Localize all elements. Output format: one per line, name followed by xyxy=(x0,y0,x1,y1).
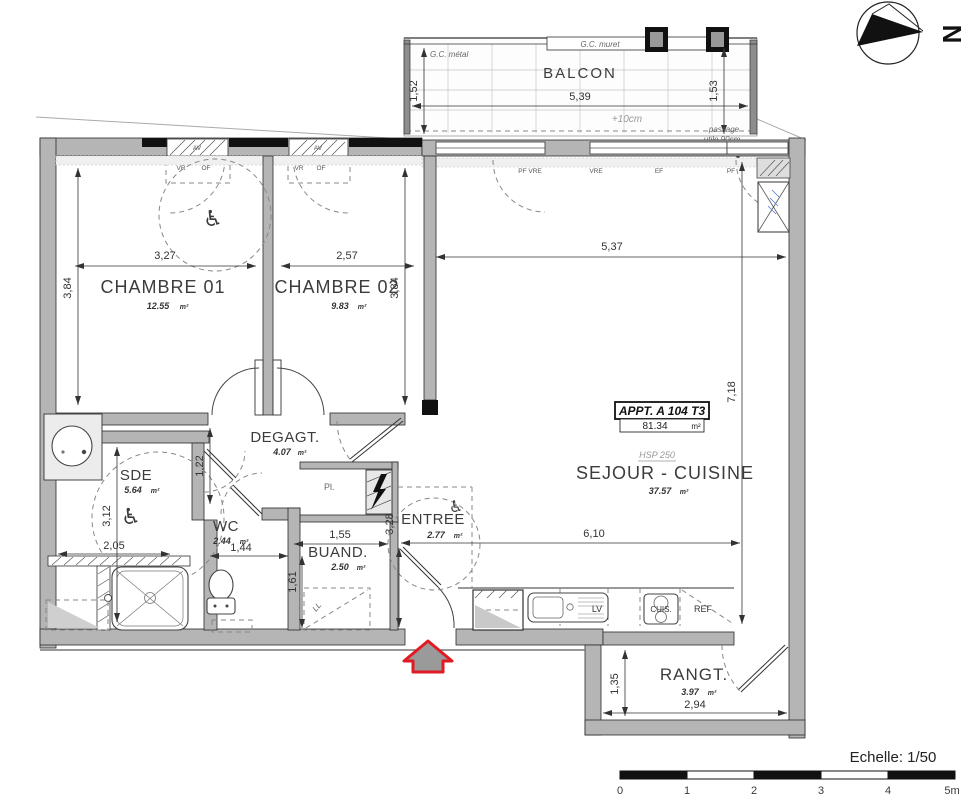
property-line-left xyxy=(36,117,422,140)
wc-area: 2.44 xyxy=(212,536,231,546)
dim-ch1-height: 3,84 xyxy=(62,277,74,298)
lintel xyxy=(349,138,422,147)
dim-sejour-height: 7,18 xyxy=(726,381,738,402)
dim-degagt-height: 1,22 xyxy=(194,455,206,476)
toilet-bowl xyxy=(209,570,233,600)
door-arc-entree xyxy=(438,587,454,628)
scale-tick-5: 5m xyxy=(944,785,959,797)
muret-label-box xyxy=(547,37,709,50)
sill-band-chambres xyxy=(56,156,422,165)
window-av2-label: AV xyxy=(314,145,323,152)
sejour-area: 37.57 xyxy=(649,486,673,496)
scale-label: Echelle: 1/50 xyxy=(850,749,937,766)
pf-vre-label: PF VRE xyxy=(518,168,542,175)
balcony-name: BALCON xyxy=(543,65,617,82)
placard: Pl. xyxy=(324,470,392,514)
lv-label: LV xyxy=(592,604,602,614)
lintel xyxy=(229,138,288,147)
scale-tick-2: 2 xyxy=(751,785,757,797)
scale-tick-4: 4 xyxy=(885,785,891,797)
dim-rangt-width: 2,94 xyxy=(684,699,705,711)
buand-name: BUAND. xyxy=(308,544,368,561)
apartment-area: 81.34 xyxy=(642,421,667,432)
wall-wc-buand xyxy=(288,508,300,630)
door-arc-chambre1 xyxy=(212,368,259,415)
scale-bar: Echelle: 1/50 0 1 2 3 4 5m xyxy=(617,749,960,797)
sde-name: SDE xyxy=(120,467,152,484)
technical-duct xyxy=(757,158,790,232)
dim-ch2-width: 2,57 xyxy=(336,250,357,262)
gc-metal-label: G.C. métal xyxy=(430,50,468,59)
sde-area: 5.64 xyxy=(124,485,142,495)
wall-left xyxy=(40,138,56,648)
dim-sejour-width: 5,37 xyxy=(601,241,622,253)
dim-sejour-mid: 6,10 xyxy=(583,528,604,540)
scale-tick-3: 3 xyxy=(818,785,824,797)
gc-muret-label: G.C. muret xyxy=(580,40,620,49)
dim-sde-width: 2,05 xyxy=(103,540,124,552)
ref-label: REF xyxy=(694,604,713,614)
shower-tap xyxy=(105,595,112,602)
wall-rangt-top xyxy=(603,632,734,645)
wall-endcap xyxy=(422,400,438,415)
hsp-label: HSP 250 xyxy=(639,450,675,460)
north-needle xyxy=(857,14,923,46)
degagt-name: DEGAGT. xyxy=(250,429,319,446)
washbasin-icon xyxy=(52,426,92,466)
degagt-unit: m² xyxy=(298,450,307,457)
north-label: N xyxy=(937,25,967,44)
door-leaf-entree xyxy=(403,547,441,585)
wall-sde-top xyxy=(100,431,209,443)
wall-ch1-ch2 xyxy=(263,156,273,415)
dim-buand-width: 1,55 xyxy=(329,529,350,541)
dim-ch1-width: 3,27 xyxy=(154,250,175,262)
chambre2-name: CHAMBRE 02 xyxy=(274,277,399,297)
entrance-arrow xyxy=(404,641,452,672)
apartment-area-unit: m² xyxy=(691,422,701,431)
door-leaf-rangt xyxy=(738,645,785,690)
property-line-right xyxy=(757,119,806,140)
of2-label: OF xyxy=(316,165,325,172)
wall-right xyxy=(789,138,805,738)
chambre2-area: 9.83 xyxy=(331,301,349,311)
chambre2-unit: m² xyxy=(358,304,367,311)
wc-name: WC xyxy=(213,518,239,535)
entree-unit: m² xyxy=(454,533,463,540)
pf-label: PF xyxy=(727,168,735,175)
dim-buand-height: 1,61 xyxy=(287,571,299,592)
scale-tick-1: 1 xyxy=(684,785,690,797)
placard-label: Pl. xyxy=(324,482,335,492)
sde-furniture-triangle xyxy=(48,602,100,628)
ll-label: LL xyxy=(311,601,324,614)
sejour-name: SEJOUR - CUISINE xyxy=(576,463,754,483)
wall-sde-right xyxy=(192,443,204,520)
dim-balcony-width: 5,39 xyxy=(569,91,590,103)
wall-placard-top xyxy=(300,462,398,469)
scale-tick-0: 0 xyxy=(617,785,623,797)
entree-area: 2.77 xyxy=(426,530,446,540)
buand-area: 2.50 xyxy=(330,562,349,572)
wall-bottom-left xyxy=(40,629,405,645)
floor-plan-drawing: G.C. muret G.C. métal BALCON 5,39 1,52 1… xyxy=(0,0,972,800)
apartment-id: APPT. A 104 T3 xyxy=(618,404,706,418)
wall-ch2-sejour xyxy=(424,156,436,400)
chambre1-unit: m² xyxy=(180,304,189,311)
rangt-unit: m² xyxy=(708,690,717,697)
toilet-tank xyxy=(207,598,235,614)
sde-unit: m² xyxy=(151,488,160,495)
wheelchair-icon: ♿ xyxy=(121,504,141,529)
floor-plan-page: G.C. muret G.C. métal BALCON 5,39 1,52 1… xyxy=(0,0,972,800)
balcony-rail-right xyxy=(750,40,757,134)
wall-rangt-bottom xyxy=(585,720,805,735)
balcony-post-core xyxy=(650,32,663,47)
door-arc-sejour xyxy=(337,421,352,462)
vre-label: VRE xyxy=(589,168,603,175)
passage-note-1: passage xyxy=(708,125,740,134)
ef-label: EF xyxy=(655,168,663,175)
chambre1-name: CHAMBRE 01 xyxy=(100,277,225,297)
sejour-unit: m² xyxy=(680,489,689,496)
rangt-name: RANGT. xyxy=(660,665,728,684)
wall-bottom-mid xyxy=(456,629,603,645)
wc-unit: m² xyxy=(240,539,249,546)
dim-balcony-right: 1,53 xyxy=(708,80,720,101)
rangt-area: 3.97 xyxy=(681,687,700,697)
door-leaf-wc xyxy=(230,487,259,516)
cuis-label: CUIS. xyxy=(650,605,671,614)
dim-sde-height: 3,12 xyxy=(101,505,113,526)
entree-name: ENTREE xyxy=(401,511,465,528)
kitchen-counter: LV CUIS. REF xyxy=(458,588,734,630)
apartment-title-box: APPT. A 104 T3 81.34 m² xyxy=(615,402,709,432)
wall-placard-right xyxy=(392,462,398,522)
wall-buand-entree xyxy=(390,522,398,630)
door-arc-chambre2 xyxy=(277,368,324,415)
window-av1-label: AV xyxy=(193,145,202,152)
wheelchair-icon: ♿ xyxy=(203,206,223,231)
lintel xyxy=(142,138,167,147)
facade-windows: PF VRE VRE EF PF xyxy=(422,142,790,212)
dim-balcony-left: 1,52 xyxy=(408,80,420,101)
dim-rangt-height: 1,35 xyxy=(609,673,621,694)
vr2-label: VR xyxy=(294,165,303,172)
sill-band-sejour xyxy=(422,158,790,167)
chambre1-area: 12.55 xyxy=(147,301,171,311)
dim-entree-height: 3,28 xyxy=(384,513,396,534)
buand-unit: m² xyxy=(357,565,366,572)
north-arrow: N xyxy=(857,2,967,64)
door-leaf-sde xyxy=(207,449,236,478)
of1-label: OF xyxy=(201,165,210,172)
balcony-post-core xyxy=(711,32,724,47)
degagt-area: 4.07 xyxy=(272,447,292,457)
buand-fixtures: LL xyxy=(304,588,370,630)
plus10-note: +10cm xyxy=(612,114,642,125)
